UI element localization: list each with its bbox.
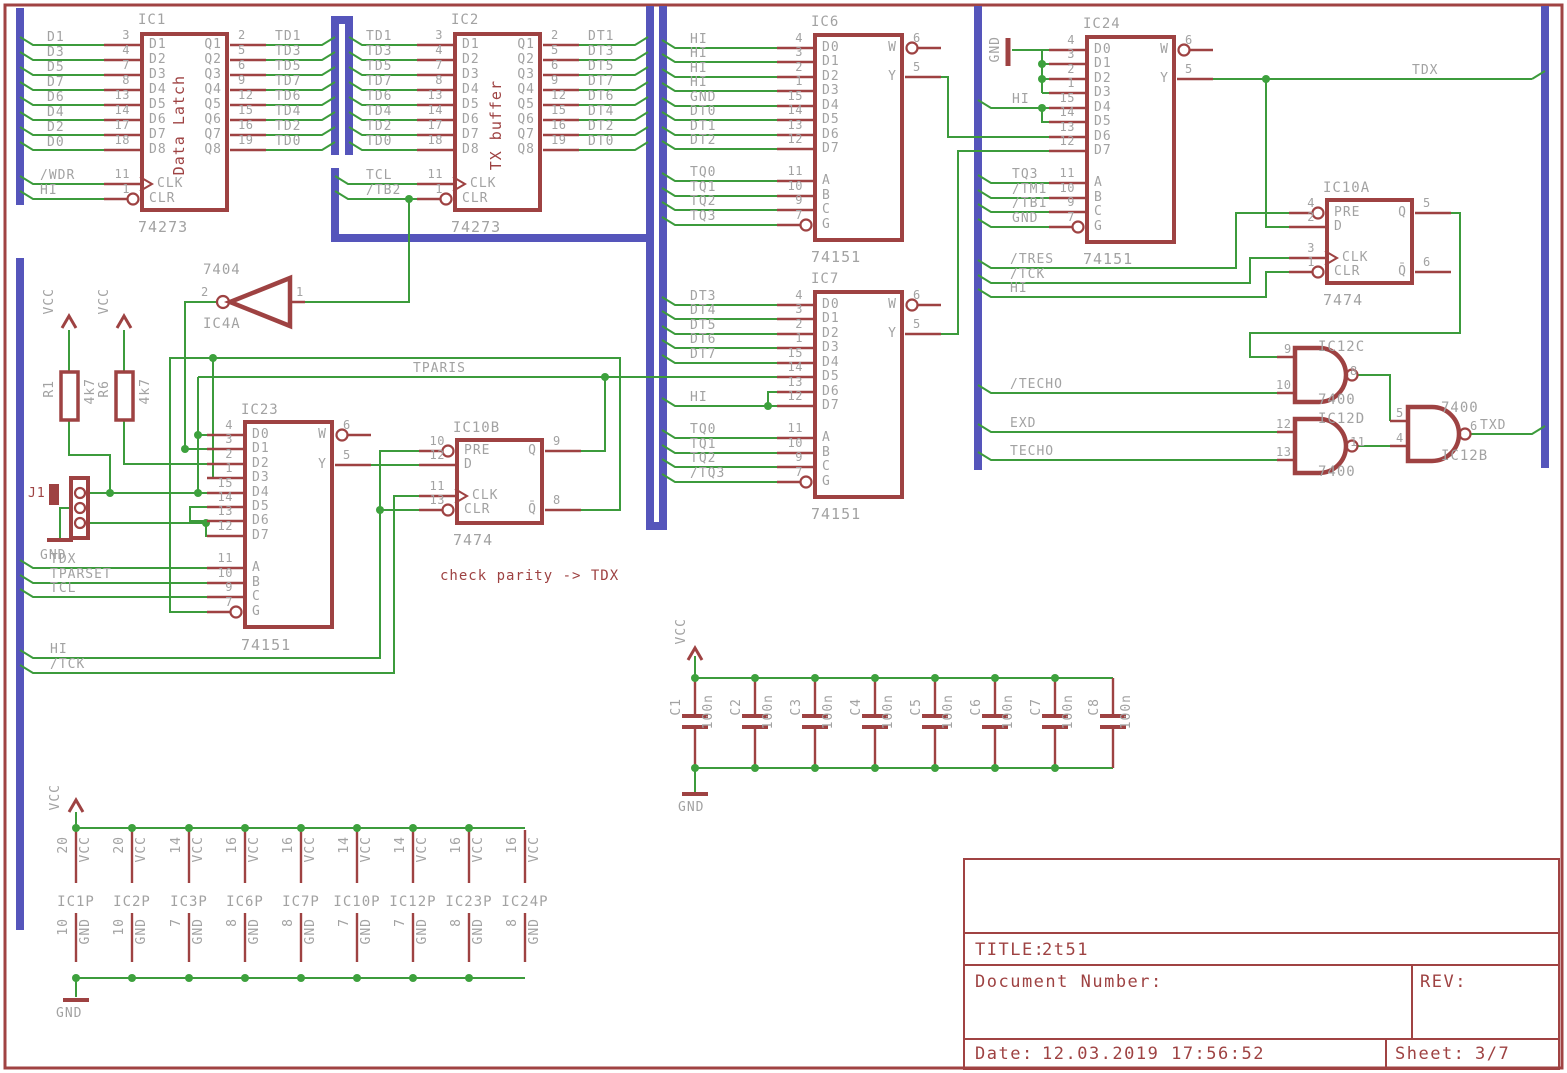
- ic-part: 7474: [1323, 291, 1363, 309]
- capacitor-value: 100n: [701, 694, 716, 729]
- pin-number: 7: [195, 595, 233, 609]
- pin-name: A: [252, 560, 261, 575]
- pin-name: Q8: [479, 142, 535, 157]
- ic-ref: IC23: [241, 402, 279, 418]
- power-vcc-pin-number: 14: [169, 836, 184, 854]
- net-label: DT4: [588, 104, 614, 119]
- net-label: TD6: [275, 89, 301, 104]
- pin-number: 7: [765, 208, 803, 222]
- power-vcc-pin-number: 20: [112, 836, 127, 854]
- net-label: GND: [988, 36, 1003, 62]
- pin-number: 12: [765, 132, 803, 146]
- pin-name: A: [822, 173, 831, 188]
- power-ic-name: IC7P: [275, 894, 327, 910]
- pin-number: 8: [405, 73, 443, 87]
- pin-name: Q̄: [1351, 264, 1407, 279]
- pin-number: 11: [195, 551, 233, 565]
- junction-dot: [185, 974, 193, 982]
- pin-number: 14: [195, 490, 233, 504]
- pin-name: D1: [462, 37, 480, 52]
- pin-name: D1: [149, 37, 167, 52]
- net-label: TQ3: [690, 209, 716, 224]
- pin-number: 9: [551, 73, 559, 87]
- capacitor-value: 100n: [821, 694, 836, 729]
- pin-number: 4: [765, 31, 803, 45]
- pin-name: G: [252, 604, 261, 619]
- net-label: TQ0: [690, 422, 716, 437]
- date-label: Date:: [975, 1044, 1034, 1064]
- pin-name: D3: [822, 83, 840, 98]
- ic-ref: 7400: [1318, 392, 1356, 408]
- net-label: HI: [1010, 281, 1028, 296]
- pin-number: 11: [765, 164, 803, 178]
- net-label: TD3: [366, 44, 392, 59]
- pin-name: D3: [252, 470, 270, 485]
- pin-number: 2: [765, 60, 803, 74]
- pin-number: 14: [1037, 105, 1075, 119]
- junction-dot: [931, 764, 939, 772]
- net-label: HI: [690, 390, 708, 405]
- junction-dot: [751, 674, 759, 682]
- power-gnd-pin-name: GND: [359, 918, 374, 944]
- net-label: DT5: [690, 318, 716, 333]
- net-label: DT1: [690, 119, 716, 134]
- pin-name: C: [822, 202, 831, 217]
- pin-number: 12: [551, 88, 566, 102]
- junction-dot: [297, 824, 305, 832]
- net-label: /TRES: [1010, 252, 1054, 267]
- pin-number: 10: [765, 179, 803, 193]
- net-label: /TCK: [50, 657, 85, 672]
- pin-name: Q7: [166, 127, 222, 142]
- pin-name: Q8: [166, 142, 222, 157]
- junction-dot: [409, 974, 417, 982]
- pin-name: D: [464, 457, 473, 472]
- net-label: TD1: [366, 29, 392, 44]
- pin-name: D8: [462, 142, 480, 157]
- net-label: HI: [690, 61, 708, 76]
- pin-name: D7: [822, 141, 840, 156]
- pin-name: D5: [822, 112, 840, 127]
- pin-name: D5: [252, 499, 270, 514]
- net-label: D2: [47, 120, 65, 135]
- pin-name: D6: [822, 127, 840, 142]
- pin-name: D0: [822, 40, 840, 55]
- pin-number: 5: [238, 43, 246, 57]
- junction-dot: [691, 674, 699, 682]
- pin-number: 2: [195, 447, 233, 461]
- pin-number: 4: [92, 43, 130, 57]
- pin-number: 3: [195, 432, 233, 446]
- pin-number: 10: [765, 436, 803, 450]
- pin-name: B: [1094, 190, 1103, 205]
- pin-number: 8: [553, 493, 561, 507]
- net-label: GND: [690, 90, 716, 105]
- power-vcc-pin-number: 16: [449, 836, 464, 854]
- power-vcc-pin-name: VCC: [303, 836, 318, 862]
- junction-dot: [931, 674, 939, 682]
- pin-number: 13: [765, 118, 803, 132]
- net-label: DT3: [690, 289, 716, 304]
- pin-name: B: [822, 188, 831, 203]
- junction-dot: [871, 764, 879, 772]
- pin-name: A: [822, 430, 831, 445]
- pin-number: 7: [765, 465, 803, 479]
- pin-number: 7: [92, 58, 130, 72]
- net-label: DT2: [690, 133, 716, 148]
- ic-ref: IC12C: [1318, 339, 1365, 355]
- pin-number: 15: [238, 103, 253, 117]
- pin-number: 15: [765, 346, 803, 360]
- resistor-r6: [116, 372, 133, 420]
- power-vcc-pin-number: 16: [281, 836, 296, 854]
- pin-name: D2: [822, 69, 840, 84]
- pin-number: 5: [551, 43, 559, 57]
- pin-number: 1: [1277, 255, 1315, 269]
- junction-dot: [128, 824, 136, 832]
- junction-dot: [465, 974, 473, 982]
- pin-number: 3: [405, 28, 443, 42]
- net-label: TPARIS: [413, 361, 466, 376]
- junction-dot: [353, 824, 361, 832]
- pin-number: 4: [405, 43, 443, 57]
- pin-name: D1: [1094, 56, 1112, 71]
- net-label: TCL: [366, 168, 392, 183]
- pin-number: 9: [195, 580, 233, 594]
- pin-name: W: [1113, 42, 1169, 57]
- junction-dot: [185, 824, 193, 832]
- net-label: DT1: [588, 29, 614, 44]
- pin-name: D2: [462, 52, 480, 67]
- pin-number: 16: [238, 118, 253, 132]
- pin-number: 2: [238, 28, 246, 42]
- power-gnd-pin-name: GND: [134, 918, 149, 944]
- net-label: TQ2: [690, 194, 716, 209]
- net-label: HI: [50, 642, 68, 657]
- junction-dot: [811, 764, 819, 772]
- net-label: 4k7: [83, 378, 98, 404]
- ic-part: 74151: [811, 505, 861, 523]
- pin-name: D3: [462, 67, 480, 82]
- pin-name: D3: [822, 340, 840, 355]
- resistor-r1: [61, 372, 78, 420]
- pin-number: 1: [92, 182, 130, 196]
- date-value: 12.03.2019 17:56:52: [1042, 1044, 1265, 1064]
- title-label: TITLE:: [975, 940, 1045, 960]
- pin-number: 1: [405, 182, 443, 196]
- net-label: GND: [678, 800, 704, 815]
- net-label: TDX: [1412, 63, 1438, 78]
- pin-name: D8: [149, 142, 167, 157]
- power-gnd-pin-name: GND: [415, 918, 430, 944]
- capacitor-ref: C6: [969, 698, 984, 716]
- pin-number: 11: [765, 421, 803, 435]
- pin-name: D4: [822, 355, 840, 370]
- ic-part: 74151: [811, 248, 861, 266]
- net-label: GND: [40, 548, 66, 563]
- ic-part: 74273: [138, 218, 188, 236]
- power-gnd-pin-name: GND: [78, 918, 93, 944]
- pin-name: D6: [822, 384, 840, 399]
- pin-name: D7: [462, 127, 480, 142]
- net-label: DT7: [690, 347, 716, 362]
- net-label: DT6: [690, 332, 716, 347]
- capacitor-value: 100n: [881, 694, 896, 729]
- pin-name: D5: [149, 97, 167, 112]
- pin-number: 6: [343, 418, 351, 432]
- power-gnd-pin-number: 8: [449, 918, 464, 927]
- ic-part: 74151: [1083, 250, 1133, 268]
- pin-number: 2: [551, 28, 559, 42]
- pin-number: 5: [1396, 406, 1404, 420]
- pin-number: 5: [913, 317, 921, 331]
- date-row: Date: 12.03.2019 17:56:52 Sheet: 3/7: [965, 1038, 1558, 1068]
- pin-name: D3: [149, 67, 167, 82]
- pin-number: 1: [296, 285, 304, 299]
- pin-number: 11: [1350, 435, 1365, 449]
- net-label: R6: [97, 380, 112, 398]
- pin-number: 1: [1037, 76, 1075, 90]
- pin-number: 6: [551, 58, 559, 72]
- capacitor-ref: C5: [909, 698, 924, 716]
- pin-number: 13: [92, 88, 130, 102]
- pin-name: W: [841, 297, 897, 312]
- power-vcc-pin-name: VCC: [247, 836, 262, 862]
- pin-number: 17: [92, 118, 130, 132]
- net-label: TD0: [275, 134, 301, 149]
- rev-label: REV:: [1420, 972, 1467, 992]
- title-value: 2t51: [1042, 940, 1089, 960]
- pin-number: 3: [765, 302, 803, 316]
- pin-name: C: [252, 589, 261, 604]
- power-vcc-pin-number: 20: [56, 836, 71, 854]
- pin-name: Q2: [166, 52, 222, 67]
- pin-name: CLK: [470, 176, 496, 191]
- pin-name: B: [252, 575, 261, 590]
- junction-dot: [409, 824, 417, 832]
- junction-dot: [72, 824, 80, 832]
- ic-ref: IC2: [451, 12, 479, 28]
- pin-number: 6: [1185, 33, 1193, 47]
- net-label: TD2: [366, 119, 392, 134]
- pin-number: 16: [551, 118, 566, 132]
- pin-name: D1: [252, 441, 270, 456]
- net-label: TD5: [275, 59, 301, 74]
- j1-pin: [75, 503, 85, 513]
- pin-name: A: [1094, 175, 1103, 190]
- pin-number: 4: [1037, 33, 1075, 47]
- pin-name: D5: [822, 369, 840, 384]
- pin-number: 2: [201, 285, 209, 299]
- pin-number: 18: [92, 133, 130, 147]
- ic-ref: IC12D: [1318, 411, 1365, 427]
- ic-ref: IC12B: [1441, 448, 1488, 464]
- power-gnd-pin-number: 8: [281, 918, 296, 927]
- net-label: TD2: [275, 119, 301, 134]
- pin-number: 12: [407, 448, 445, 462]
- ic-ref: IC4A: [203, 316, 241, 332]
- net-label: DT7: [588, 74, 614, 89]
- power-gnd-pin-name: GND: [527, 918, 542, 944]
- pin-number: 14: [92, 103, 130, 117]
- ic-ref: IC24: [1083, 16, 1121, 32]
- power-vcc-pin-name: VCC: [471, 836, 486, 862]
- pin-name: D4: [1094, 100, 1112, 115]
- junction-dot: [297, 974, 305, 982]
- pin-number: 1: [765, 74, 803, 88]
- pin-number: 3: [92, 28, 130, 42]
- pin-name: C: [1094, 204, 1103, 219]
- net-label: /WDR: [40, 168, 75, 183]
- pin-name: Y: [271, 457, 327, 472]
- pin-name: Y: [841, 69, 897, 84]
- pin-number: 5: [913, 60, 921, 74]
- pin-number: 8: [92, 73, 130, 87]
- net-label: TQ1: [690, 180, 716, 195]
- pin-name: D6: [149, 112, 167, 127]
- net-label: VCC: [48, 784, 63, 810]
- pin-number: 3: [765, 45, 803, 59]
- j1-pin: [75, 518, 85, 528]
- net-label: D1: [47, 30, 65, 45]
- pin-number: 13: [407, 493, 445, 507]
- j1-pin: [75, 488, 85, 498]
- power-ic-name: IC23P: [443, 894, 495, 910]
- pin-number: 2: [1277, 210, 1315, 224]
- net-label: TD4: [366, 104, 392, 119]
- pin-number: 17: [405, 118, 443, 132]
- power-vcc-pin-name: VCC: [359, 836, 374, 862]
- pin-name: Q4: [479, 82, 535, 97]
- title-block: TITLE: 2t51 Document Number: REV: Date: …: [963, 858, 1560, 1070]
- pin-number: 3: [1277, 241, 1315, 255]
- pin-number: 14: [765, 103, 803, 117]
- net-label: TQ2: [690, 451, 716, 466]
- net-label: HI: [690, 32, 708, 47]
- power-vcc-pin-name: VCC: [134, 836, 149, 862]
- pin-number: 14: [405, 103, 443, 117]
- ic-part: 74151: [241, 636, 291, 654]
- pin-name: Q2: [479, 52, 535, 67]
- ic-part: 74273: [451, 218, 501, 236]
- pin-name: Q4: [166, 82, 222, 97]
- pin-name: Q5: [166, 97, 222, 112]
- net-label: TECHO: [1010, 444, 1054, 459]
- pin-name: Q6: [479, 112, 535, 127]
- pin-name: D1: [822, 311, 840, 326]
- pin-name: CLK: [1342, 250, 1368, 265]
- pin-number: 4: [1277, 196, 1315, 210]
- pin-name: W: [841, 40, 897, 55]
- pin-number: 9: [1284, 342, 1292, 356]
- net-label: /TQ3: [690, 466, 725, 481]
- net-label: TQ0: [690, 165, 716, 180]
- junction-dot: [991, 674, 999, 682]
- junction-dot: [241, 974, 249, 982]
- pin-name: C: [822, 459, 831, 474]
- pin-number: 14: [765, 360, 803, 374]
- junction-dot: [691, 764, 699, 772]
- net-label: TQ3: [1012, 167, 1038, 182]
- sheet-value: 3/7: [1475, 1044, 1510, 1064]
- pin-name: CLK: [472, 488, 498, 503]
- net-label: DT4: [690, 303, 716, 318]
- net-label: DT6: [588, 89, 614, 104]
- net-label: TD6: [366, 89, 392, 104]
- power-ic-name: IC10P: [331, 894, 383, 910]
- pin-number: 5: [1185, 62, 1193, 76]
- pin-name: D0: [822, 297, 840, 312]
- pin-name: D: [1334, 219, 1343, 234]
- ic-ref: 7400: [1441, 400, 1479, 416]
- pin-name: D7: [252, 528, 270, 543]
- net-label: HI: [40, 183, 58, 198]
- pin-number: 15: [195, 476, 233, 490]
- capacitor-value: 100n: [1061, 694, 1076, 729]
- pin-name: D6: [252, 513, 270, 528]
- capacitor-value: 100n: [1119, 694, 1134, 729]
- power-ic-name: IC24P: [499, 894, 551, 910]
- net-label: DT0: [588, 134, 614, 149]
- net-label: DT5: [588, 59, 614, 74]
- junction-dot: [353, 974, 361, 982]
- pin-name: Q5: [479, 97, 535, 112]
- pin-name: D7: [822, 398, 840, 413]
- pin-number: 13: [405, 88, 443, 102]
- power-gnd-pin-name: GND: [247, 918, 262, 944]
- pin-name: Y: [841, 326, 897, 341]
- net-label: D5: [47, 60, 65, 75]
- pin-number: 13: [1037, 120, 1075, 134]
- capacitor-ref: C2: [729, 698, 744, 716]
- net-label: HI: [690, 46, 708, 61]
- net-label: D7: [47, 75, 65, 90]
- pin-name: G: [1094, 219, 1103, 234]
- net-label: GND: [1012, 211, 1038, 226]
- net-label: TD7: [366, 74, 392, 89]
- pin-number: 4: [1396, 431, 1404, 445]
- pin-number: 5: [1423, 196, 1431, 210]
- pin-number: 15: [551, 103, 566, 117]
- pin-number: 6: [913, 288, 921, 302]
- pin-number: 12: [238, 88, 253, 102]
- pin-number: 12: [765, 389, 803, 403]
- pin-name: D0: [252, 427, 270, 442]
- capacitor-ref: C1: [669, 698, 684, 716]
- pin-number: 8: [1350, 364, 1358, 378]
- power-ic-name: IC12P: [387, 894, 439, 910]
- net-label: TQ1: [690, 437, 716, 452]
- pin-name: Q1: [479, 37, 535, 52]
- net-label: TD1: [275, 29, 301, 44]
- pin-number: 6: [1423, 255, 1431, 269]
- wire-net: [198, 40, 1055, 482]
- capacitor-ref: C8: [1087, 698, 1102, 716]
- junction-dot: [72, 974, 80, 982]
- pin-number: 2: [1037, 62, 1075, 76]
- pin-number: 11: [407, 479, 445, 493]
- pin-name: Q7: [479, 127, 535, 142]
- power-gnd-pin-number: 8: [505, 918, 520, 927]
- pin-number: 9: [238, 73, 246, 87]
- rev-divider: [1411, 966, 1413, 1038]
- net-label: TXD: [1480, 418, 1506, 433]
- pin-number: 4: [765, 288, 803, 302]
- net-label: TCL: [50, 581, 76, 596]
- net-label: TD7: [275, 74, 301, 89]
- pin-number: 15: [1037, 91, 1075, 105]
- net-label: /TB1: [1012, 196, 1047, 211]
